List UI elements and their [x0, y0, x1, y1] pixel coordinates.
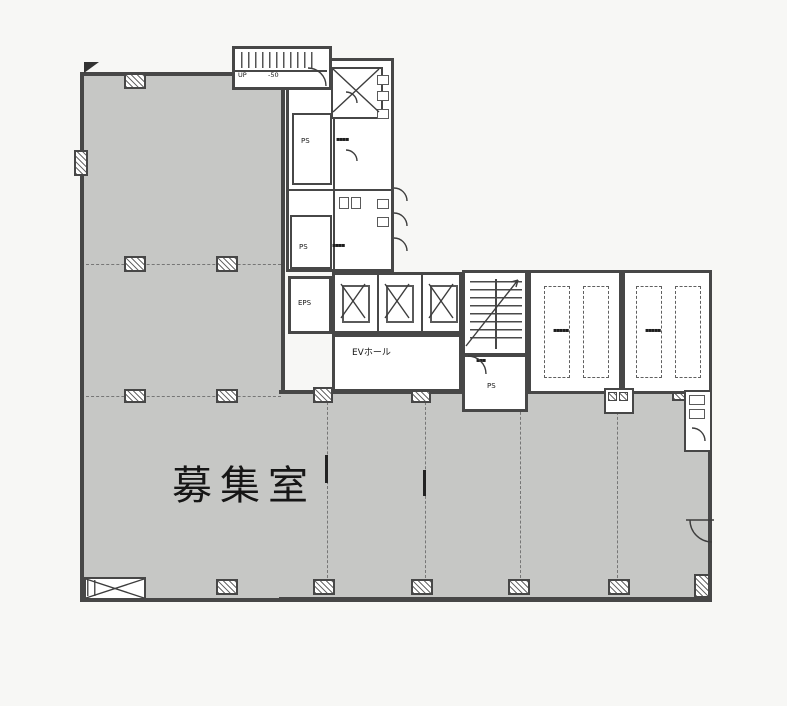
column-mark	[216, 256, 238, 272]
partition-line	[520, 402, 521, 578]
column-mark	[313, 387, 333, 403]
equipment-unit	[583, 286, 609, 378]
stair-divider	[495, 279, 497, 349]
column-mark	[124, 73, 146, 89]
elevator-car-2	[386, 285, 414, 323]
duct-shaft-room	[331, 67, 383, 119]
illegible-label-wc-upper: ▪▪▪▪	[336, 137, 348, 143]
door-arc-core	[394, 188, 407, 201]
shaft-hatch	[619, 392, 628, 401]
partition-mark	[325, 455, 328, 483]
grid-line-horizontal	[86, 264, 281, 265]
vacant-area-bottom-wing	[279, 390, 712, 602]
column-mark	[216, 579, 238, 595]
floor-plan: 募集室 EVホール EPS PS PS PS UP -50 ▪▪▪▪ ▪▪▪▪ …	[0, 0, 787, 706]
toilet-fixture	[377, 91, 389, 101]
equipment-unit	[675, 286, 701, 378]
stairwell	[462, 270, 528, 356]
column-mark	[313, 579, 335, 595]
service-core	[286, 58, 394, 272]
shaft-wall	[377, 275, 379, 331]
vacant-area-left-wing	[80, 72, 285, 602]
exterior-stair	[232, 46, 332, 90]
shaft-hatch	[608, 392, 617, 401]
exterior-stair-up-label: UP	[238, 72, 247, 79]
basin-fixture	[351, 197, 361, 209]
column-mark	[508, 579, 530, 595]
illegible-label-machine-right: ▪▪▪▪▪	[645, 328, 660, 334]
stair-steps-hatch	[241, 52, 313, 68]
basin-fixture	[339, 197, 349, 209]
illegible-label-wc-lower: ▪▪▪▪	[332, 243, 344, 249]
elevator-hall	[332, 334, 462, 392]
column-mark	[74, 150, 88, 176]
eps-label: EPS	[298, 300, 311, 307]
column-mark	[608, 579, 630, 595]
column-mark	[124, 256, 146, 272]
elevator-car-3	[430, 285, 458, 323]
hatch-strip	[87, 580, 100, 596]
grid-line-horizontal	[86, 396, 281, 397]
core-partition-h	[289, 189, 391, 191]
column-mark	[694, 574, 710, 598]
column-mark	[216, 389, 238, 403]
balcony-equipment-box	[84, 577, 146, 600]
toilet-fixture	[377, 199, 389, 209]
illegible-label-stair-side: ▪▪▪	[476, 358, 485, 364]
toilet-fixture	[377, 217, 389, 227]
partition-line	[327, 402, 328, 578]
toilet-fixture	[377, 109, 389, 119]
partition-mark	[423, 470, 426, 496]
column-mark	[124, 389, 146, 403]
fixture	[689, 395, 705, 405]
elevator-bank	[332, 272, 462, 334]
ps-label-under-stair: PS	[487, 383, 496, 390]
vacant-room-label: 募集室	[172, 466, 316, 506]
toilet-fixture	[377, 75, 389, 85]
exterior-stair-level-label: -50	[268, 72, 279, 79]
stair-divider	[235, 70, 327, 72]
shaft-wall	[421, 275, 423, 331]
ev-hall-label: EVホール	[352, 349, 391, 358]
fixture	[689, 409, 705, 419]
shaft-box	[604, 388, 634, 414]
machine-room-right	[622, 270, 712, 394]
elevator-car-1	[342, 285, 370, 323]
door-arc-core	[394, 213, 407, 226]
machine-room-left	[528, 270, 622, 394]
partition-line	[617, 402, 618, 578]
pipe-shaft-room-mid	[290, 215, 332, 269]
corner-service-room	[684, 390, 712, 452]
door-arc-core	[394, 238, 407, 251]
illegible-label-machine-left: ▪▪▪▪▪	[553, 328, 568, 334]
ps-label-upper: PS	[301, 138, 310, 145]
ps-label-mid: PS	[299, 244, 308, 251]
column-mark	[411, 579, 433, 595]
pipe-shaft-room-upper	[292, 113, 332, 185]
